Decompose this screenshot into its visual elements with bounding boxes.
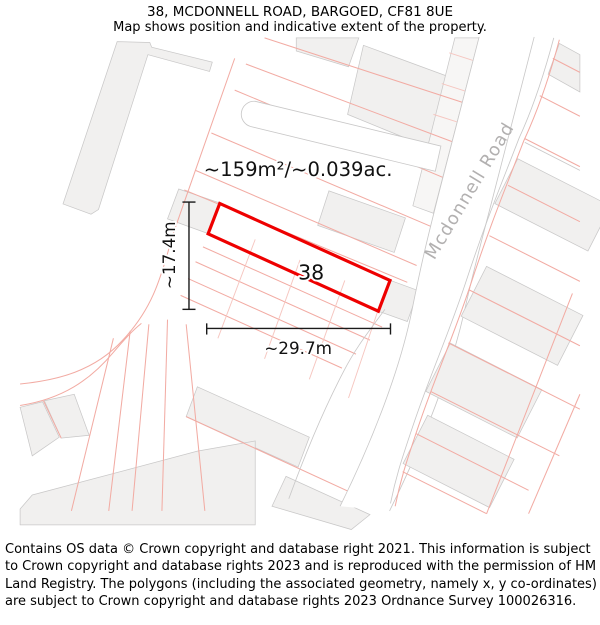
plot-number-label: 38	[298, 261, 324, 285]
building-sliver	[548, 43, 580, 92]
building-east	[461, 266, 583, 365]
width-dimension-label: ~29.7m	[264, 338, 332, 358]
building-block	[296, 38, 359, 67]
page-header: 38, MCDONNELL ROAD, BARGOED, CF81 8UE Ma…	[0, 0, 600, 36]
page-title: 38, MCDONNELL ROAD, BARGOED, CF81 8UE	[0, 0, 600, 20]
height-dimension-label: ~17.4m	[159, 221, 179, 289]
map-canvas: Mcdonnell Road ~159m²/~0.039ac. 38 ~17.4…	[0, 36, 600, 537]
page-footer: Contains OS data © Crown copyright and d…	[0, 538, 600, 625]
terrace-house-block	[318, 191, 406, 253]
area-label: ~159m²/~0.039ac.	[204, 158, 393, 181]
copyright-notice: Contains OS data © Crown copyright and d…	[5, 541, 598, 611]
building-top-left	[63, 42, 212, 215]
horizontal-dimension-line	[207, 323, 391, 334]
page-subtitle: Map shows position and indicative extent…	[0, 20, 600, 36]
property-map: Mcdonnell Road ~159m²/~0.039ac. 38 ~17.4…	[0, 36, 600, 537]
